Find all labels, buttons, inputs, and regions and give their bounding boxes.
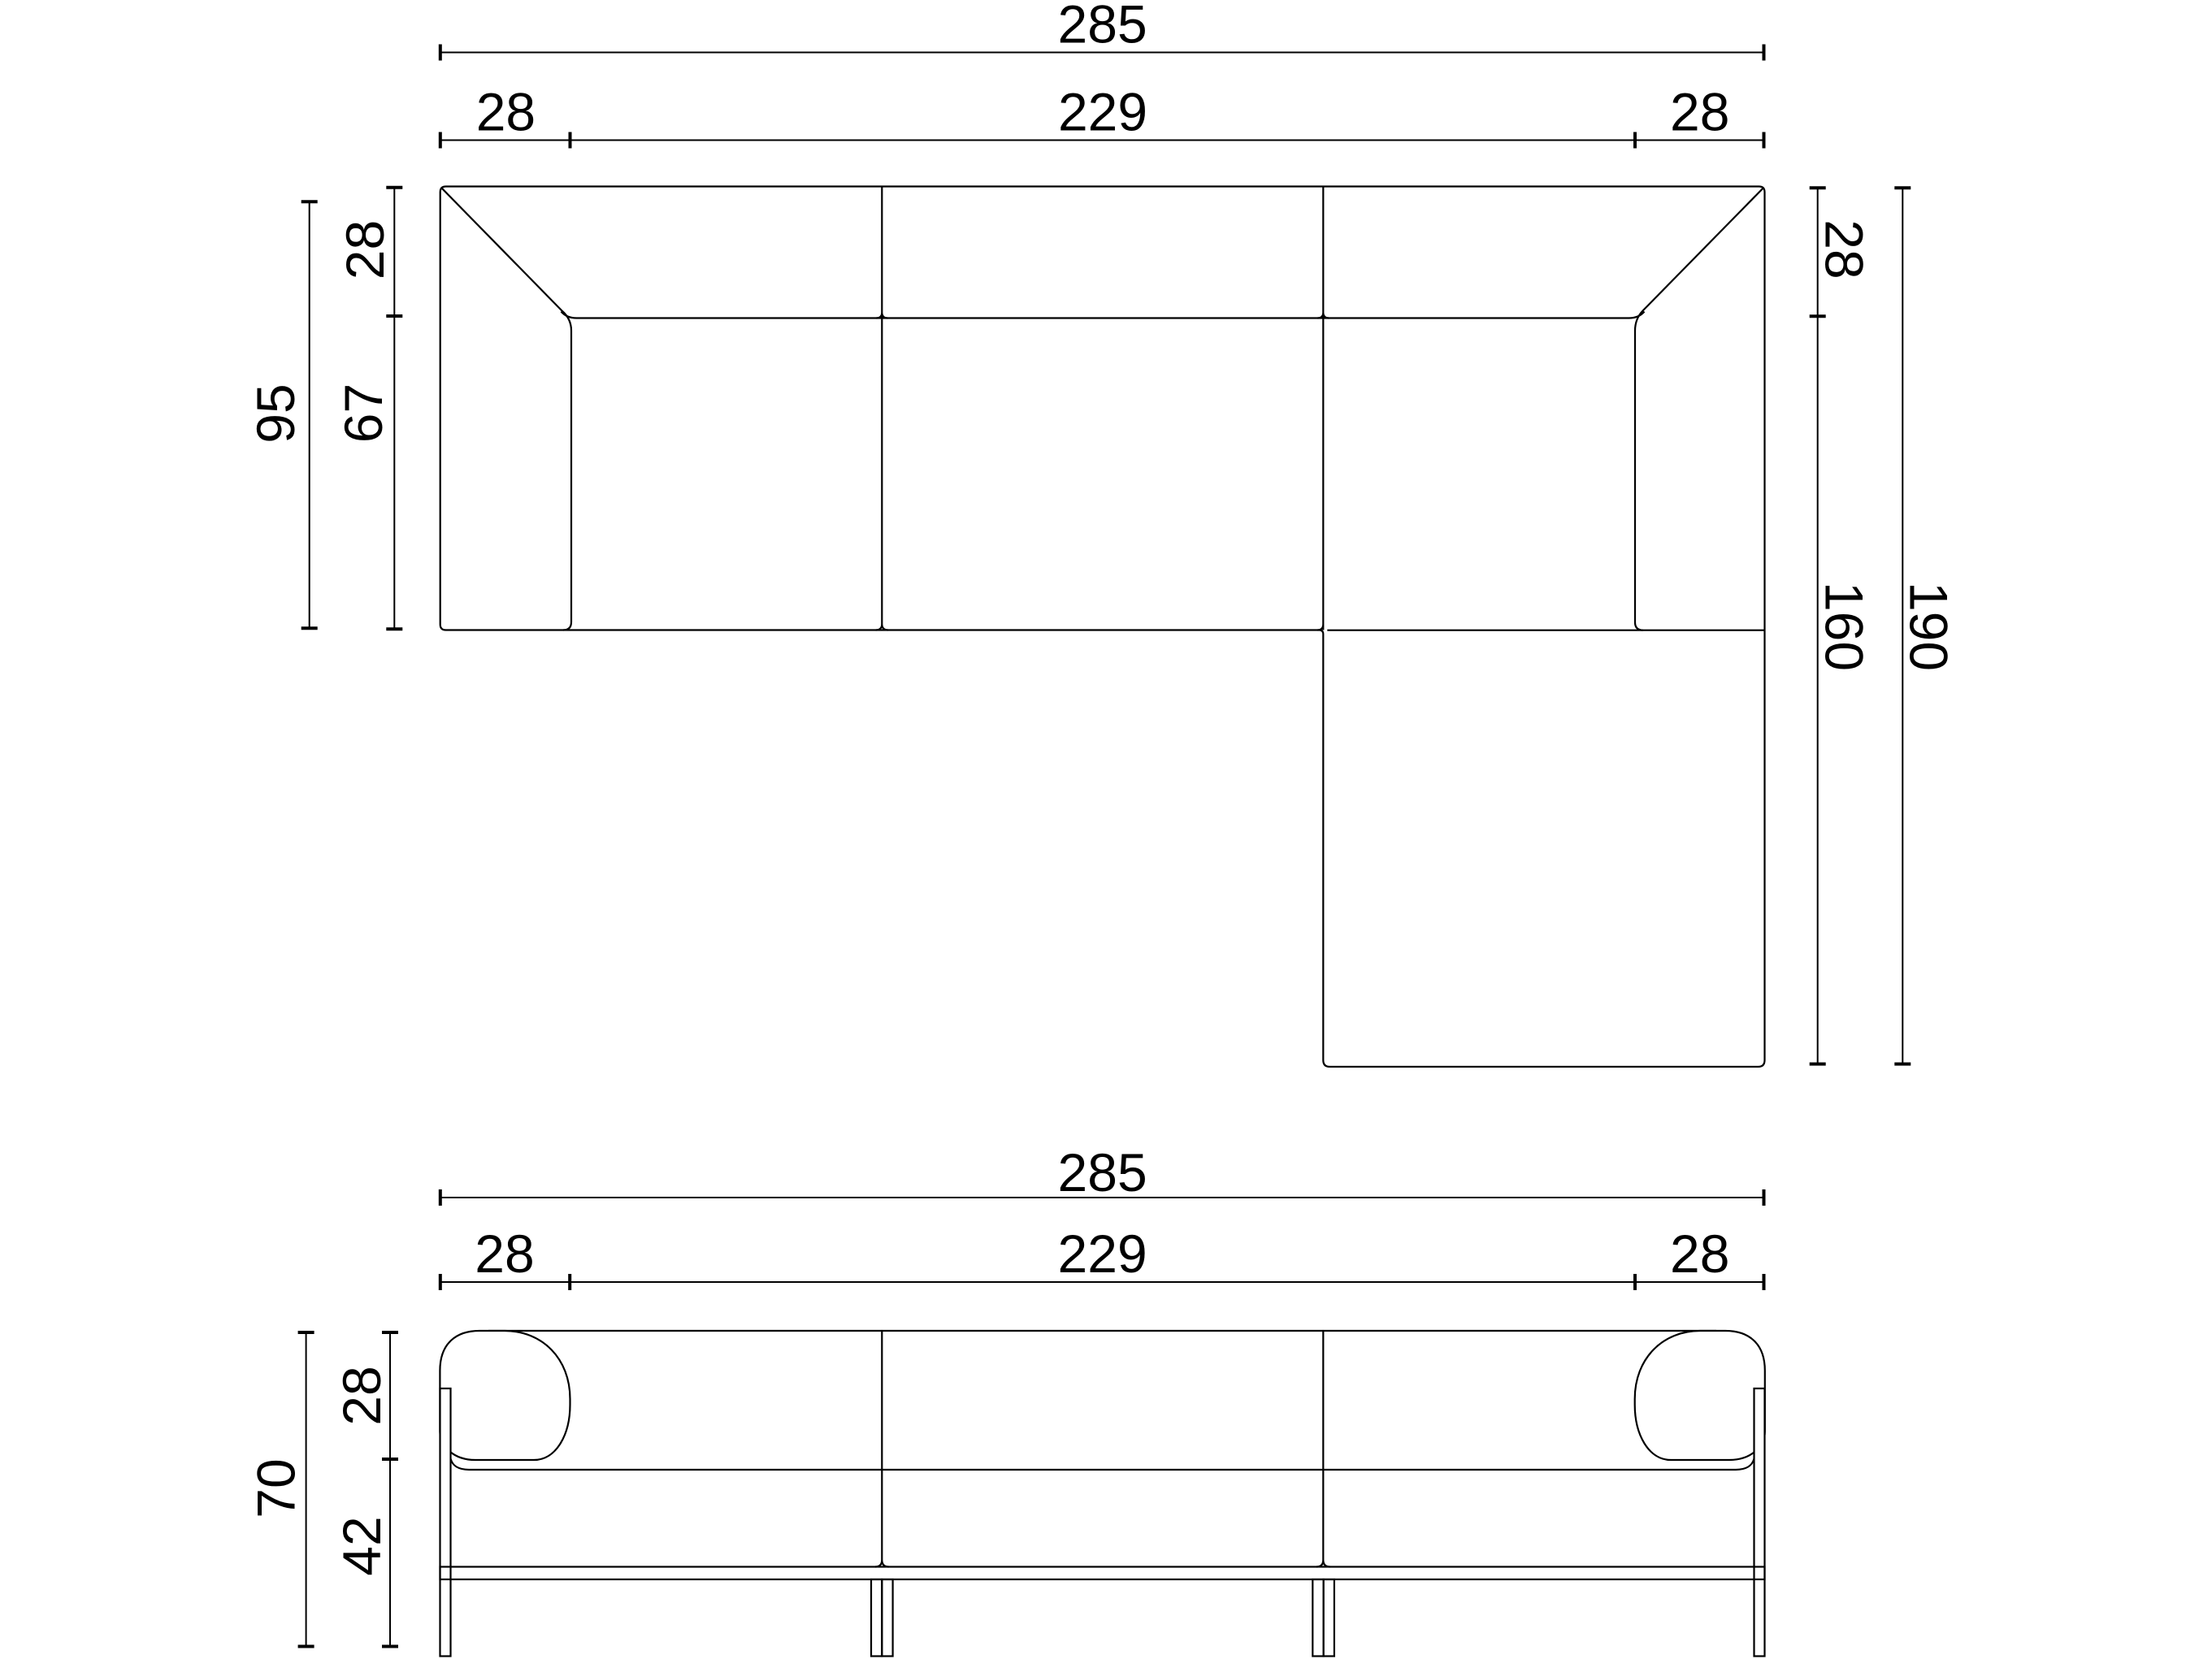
svg-text:190: 190 [1899, 582, 1959, 671]
svg-text:28: 28 [476, 82, 536, 142]
svg-text:160: 160 [1815, 582, 1875, 671]
svg-text:28: 28 [1670, 1224, 1729, 1284]
svg-text:229: 229 [1058, 1224, 1147, 1284]
svg-text:28: 28 [335, 220, 395, 279]
svg-text:285: 285 [1058, 1142, 1147, 1202]
svg-text:285: 285 [1058, 0, 1147, 54]
svg-text:67: 67 [333, 383, 393, 443]
svg-text:28: 28 [332, 1366, 392, 1425]
svg-text:28: 28 [475, 1224, 534, 1284]
svg-text:95: 95 [245, 383, 306, 443]
svg-text:70: 70 [246, 1458, 306, 1518]
svg-text:28: 28 [1670, 82, 1729, 142]
svg-text:42: 42 [332, 1516, 392, 1575]
svg-text:28: 28 [1815, 219, 1875, 279]
svg-text:229: 229 [1058, 82, 1147, 142]
